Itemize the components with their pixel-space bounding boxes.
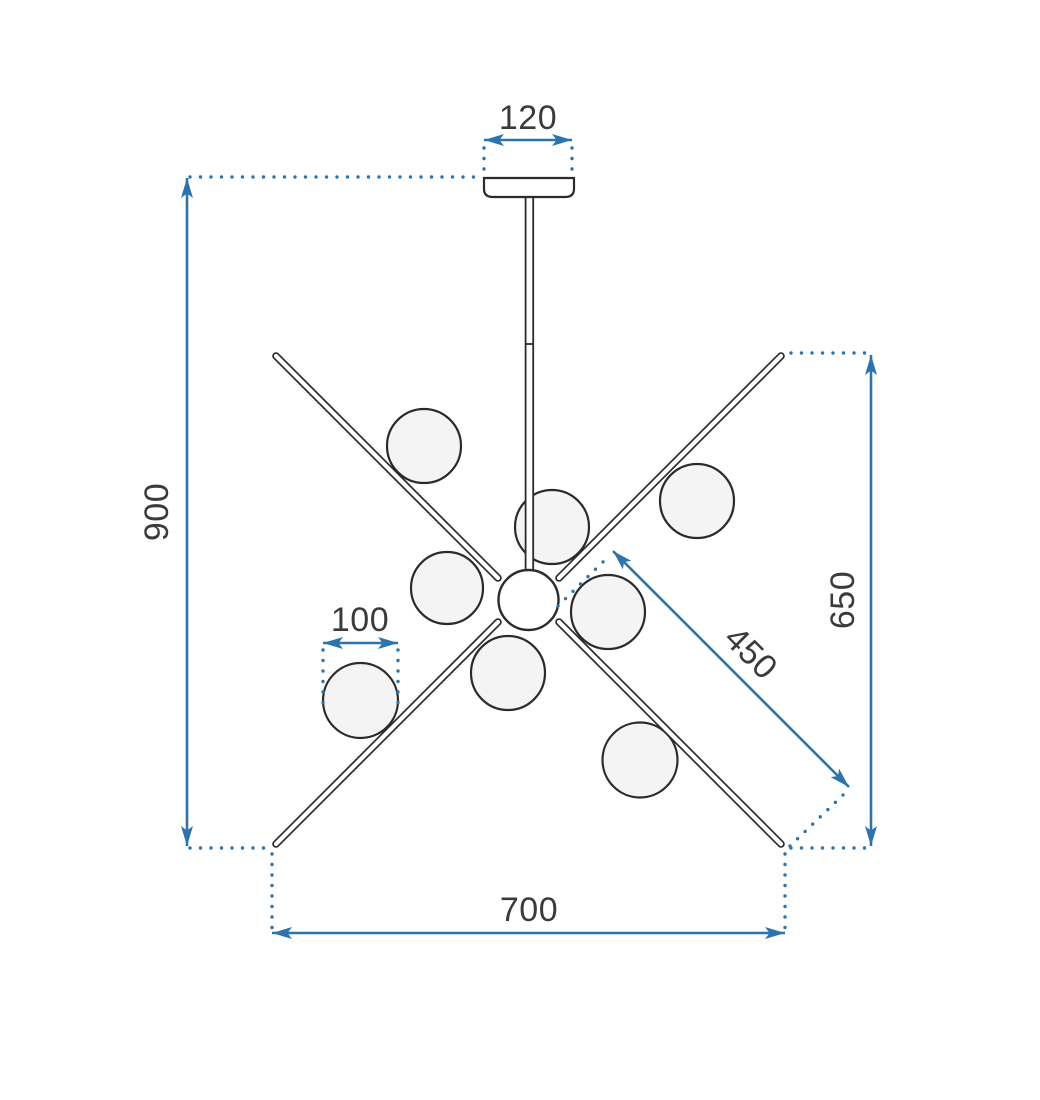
- dim-arm-span-height: 650: [791, 353, 871, 848]
- ceiling-plate: [484, 178, 574, 197]
- dim-label-ball-diameter: 100: [331, 601, 389, 639]
- dim-label-arm-length: 450: [717, 619, 785, 687]
- dimension-drawing: 120 900 700 650 450 100: [0, 0, 1040, 1100]
- dim-label-plate-width: 120: [499, 99, 557, 137]
- extension-line: [790, 795, 843, 846]
- dim-overall-width: 700: [272, 854, 785, 933]
- glass-ball: [387, 409, 461, 483]
- arm-upper-left: [276, 356, 498, 578]
- central-hub: [499, 570, 559, 630]
- dim-label-overall-width: 700: [500, 891, 558, 929]
- glass-ball: [411, 552, 483, 624]
- glass-ball: [323, 663, 398, 738]
- arm-upper-right: [559, 356, 781, 578]
- lamp-fixture: [276, 178, 781, 844]
- dim-plate-width: 120: [484, 99, 572, 174]
- glass-ball: [471, 636, 545, 710]
- dimension-drawing-page: 120 900 700 650 450 100: [0, 0, 1040, 1100]
- dim-label-overall-height: 900: [138, 483, 176, 541]
- stem-rod: [526, 196, 534, 572]
- dim-label-arm-span-height: 650: [824, 571, 862, 629]
- glass-ball: [571, 575, 645, 649]
- glass-ball: [660, 464, 734, 538]
- arm-lower-left: [276, 622, 498, 844]
